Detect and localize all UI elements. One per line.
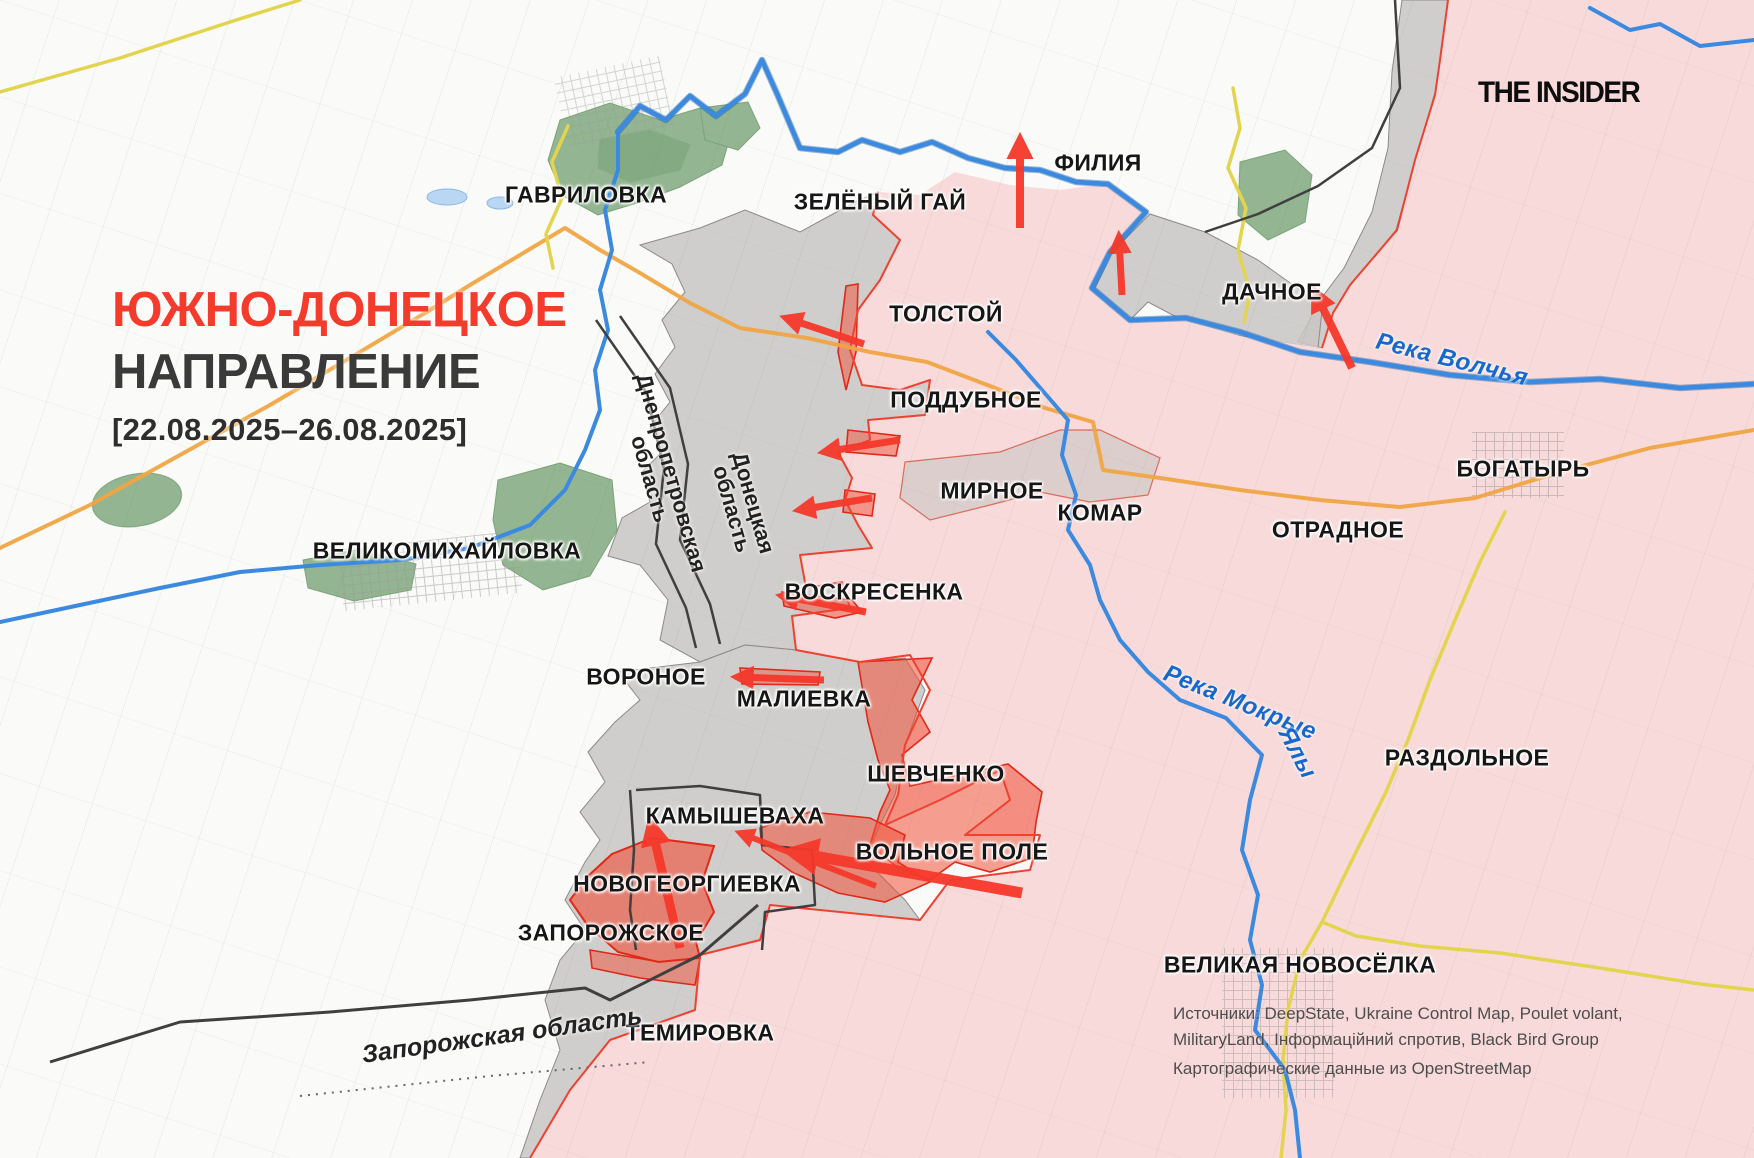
page-title-line2: НАПРАВЛЕНИЕ — [112, 344, 567, 400]
town-label-zelyony-gai: ЗЕЛЁНЫЙ ГАЙ — [794, 189, 966, 216]
town-label-velikomikhailovka: ВЕЛИКОМИХАЙЛОВКА — [313, 538, 581, 565]
town-label-kamyshevakha: КАМЫШЕВАХА — [646, 803, 825, 830]
title-block: ЮЖНО-ДОНЕЦКОЕ НАПРАВЛЕНИЕ [22.08.2025–26… — [112, 282, 567, 448]
town-label-voronoe: ВОРОНОЕ — [586, 664, 706, 691]
town-label-bogatyr: БОГАТЫРЬ — [1456, 456, 1589, 483]
town-label-velikaya-novosyolka: ВЕЛИКАЯ НОВОСЁЛКА — [1164, 952, 1436, 979]
sources-line2: MilitaryLand, Інформаційний спротив, Bla… — [1173, 1027, 1623, 1053]
town-label-dachnoe: ДАЧНОЕ — [1222, 279, 1322, 306]
map-canvas: ГАВРИЛОВКА ЗЕЛЁНЫЙ ГАЙ ФИЛИЯ ТОЛСТОЙ ДАЧ… — [0, 0, 1754, 1158]
town-label-malievka: МАЛИЕВКА — [737, 686, 872, 713]
town-label-otradnoe: ОТРАДНОЕ — [1272, 517, 1404, 544]
page-title-line1: ЮЖНО-ДОНЕЦКОЕ — [112, 282, 567, 338]
sources-line1: Источники: DeepState, Ukraine Control Ma… — [1173, 1001, 1623, 1027]
town-label-novogeorgievka: НОВОГЕОРГИЕВКА — [573, 871, 801, 898]
date-range: [22.08.2025–26.08.2025] — [112, 412, 567, 448]
sources-block: Источники: DeepState, Ukraine Control Ma… — [1173, 1001, 1623, 1082]
town-label-temirovka: ТЕМИРОВКА — [626, 1020, 775, 1047]
town-label-gavrilovka: ГАВРИЛОВКА — [505, 182, 667, 209]
town-label-shevchenko: ШЕВЧЕНКО — [867, 761, 1004, 788]
town-label-tolstoy: ТОЛСТОЙ — [889, 301, 1003, 328]
arrow-malievka-west — [737, 677, 824, 680]
town-label-volnoe-pole: ВОЛЬНОЕ ПОЛЕ — [856, 839, 1048, 866]
town-label-poddubnoe: ПОДДУБНОЕ — [890, 387, 1041, 414]
town-label-voskresenka: ВОСКРЕСЕНКА — [785, 579, 964, 606]
the-insider-logo: THE INSIDER — [1478, 76, 1639, 110]
sources-line3: Картографические данные из OpenStreetMap — [1173, 1056, 1623, 1082]
town-label-razdolnoe: РАЗДОЛЬНОЕ — [1385, 745, 1550, 772]
town-label-komar: КОМАР — [1057, 500, 1142, 527]
town-label-mirnoe: МИРНОЕ — [940, 478, 1043, 505]
town-label-zaporozhskoe: ЗАПОРОЖСКОЕ — [518, 920, 704, 947]
town-label-filiya: ФИЛИЯ — [1054, 150, 1141, 177]
arrow-dachnoe-north — [1119, 237, 1122, 295]
